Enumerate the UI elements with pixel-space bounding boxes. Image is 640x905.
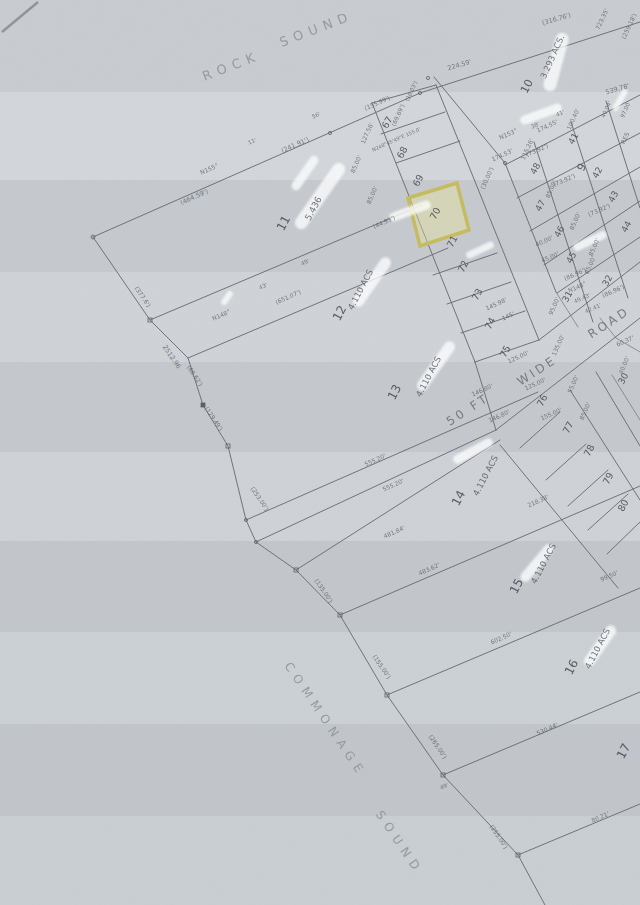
scanned-page: ROCKSOUNDCOMMONAGESOUND115.436124.110 AC… xyxy=(0,0,640,905)
scan-grain xyxy=(0,0,640,905)
survey-map: ROCKSOUNDCOMMONAGESOUND115.436124.110 AC… xyxy=(0,0,640,905)
